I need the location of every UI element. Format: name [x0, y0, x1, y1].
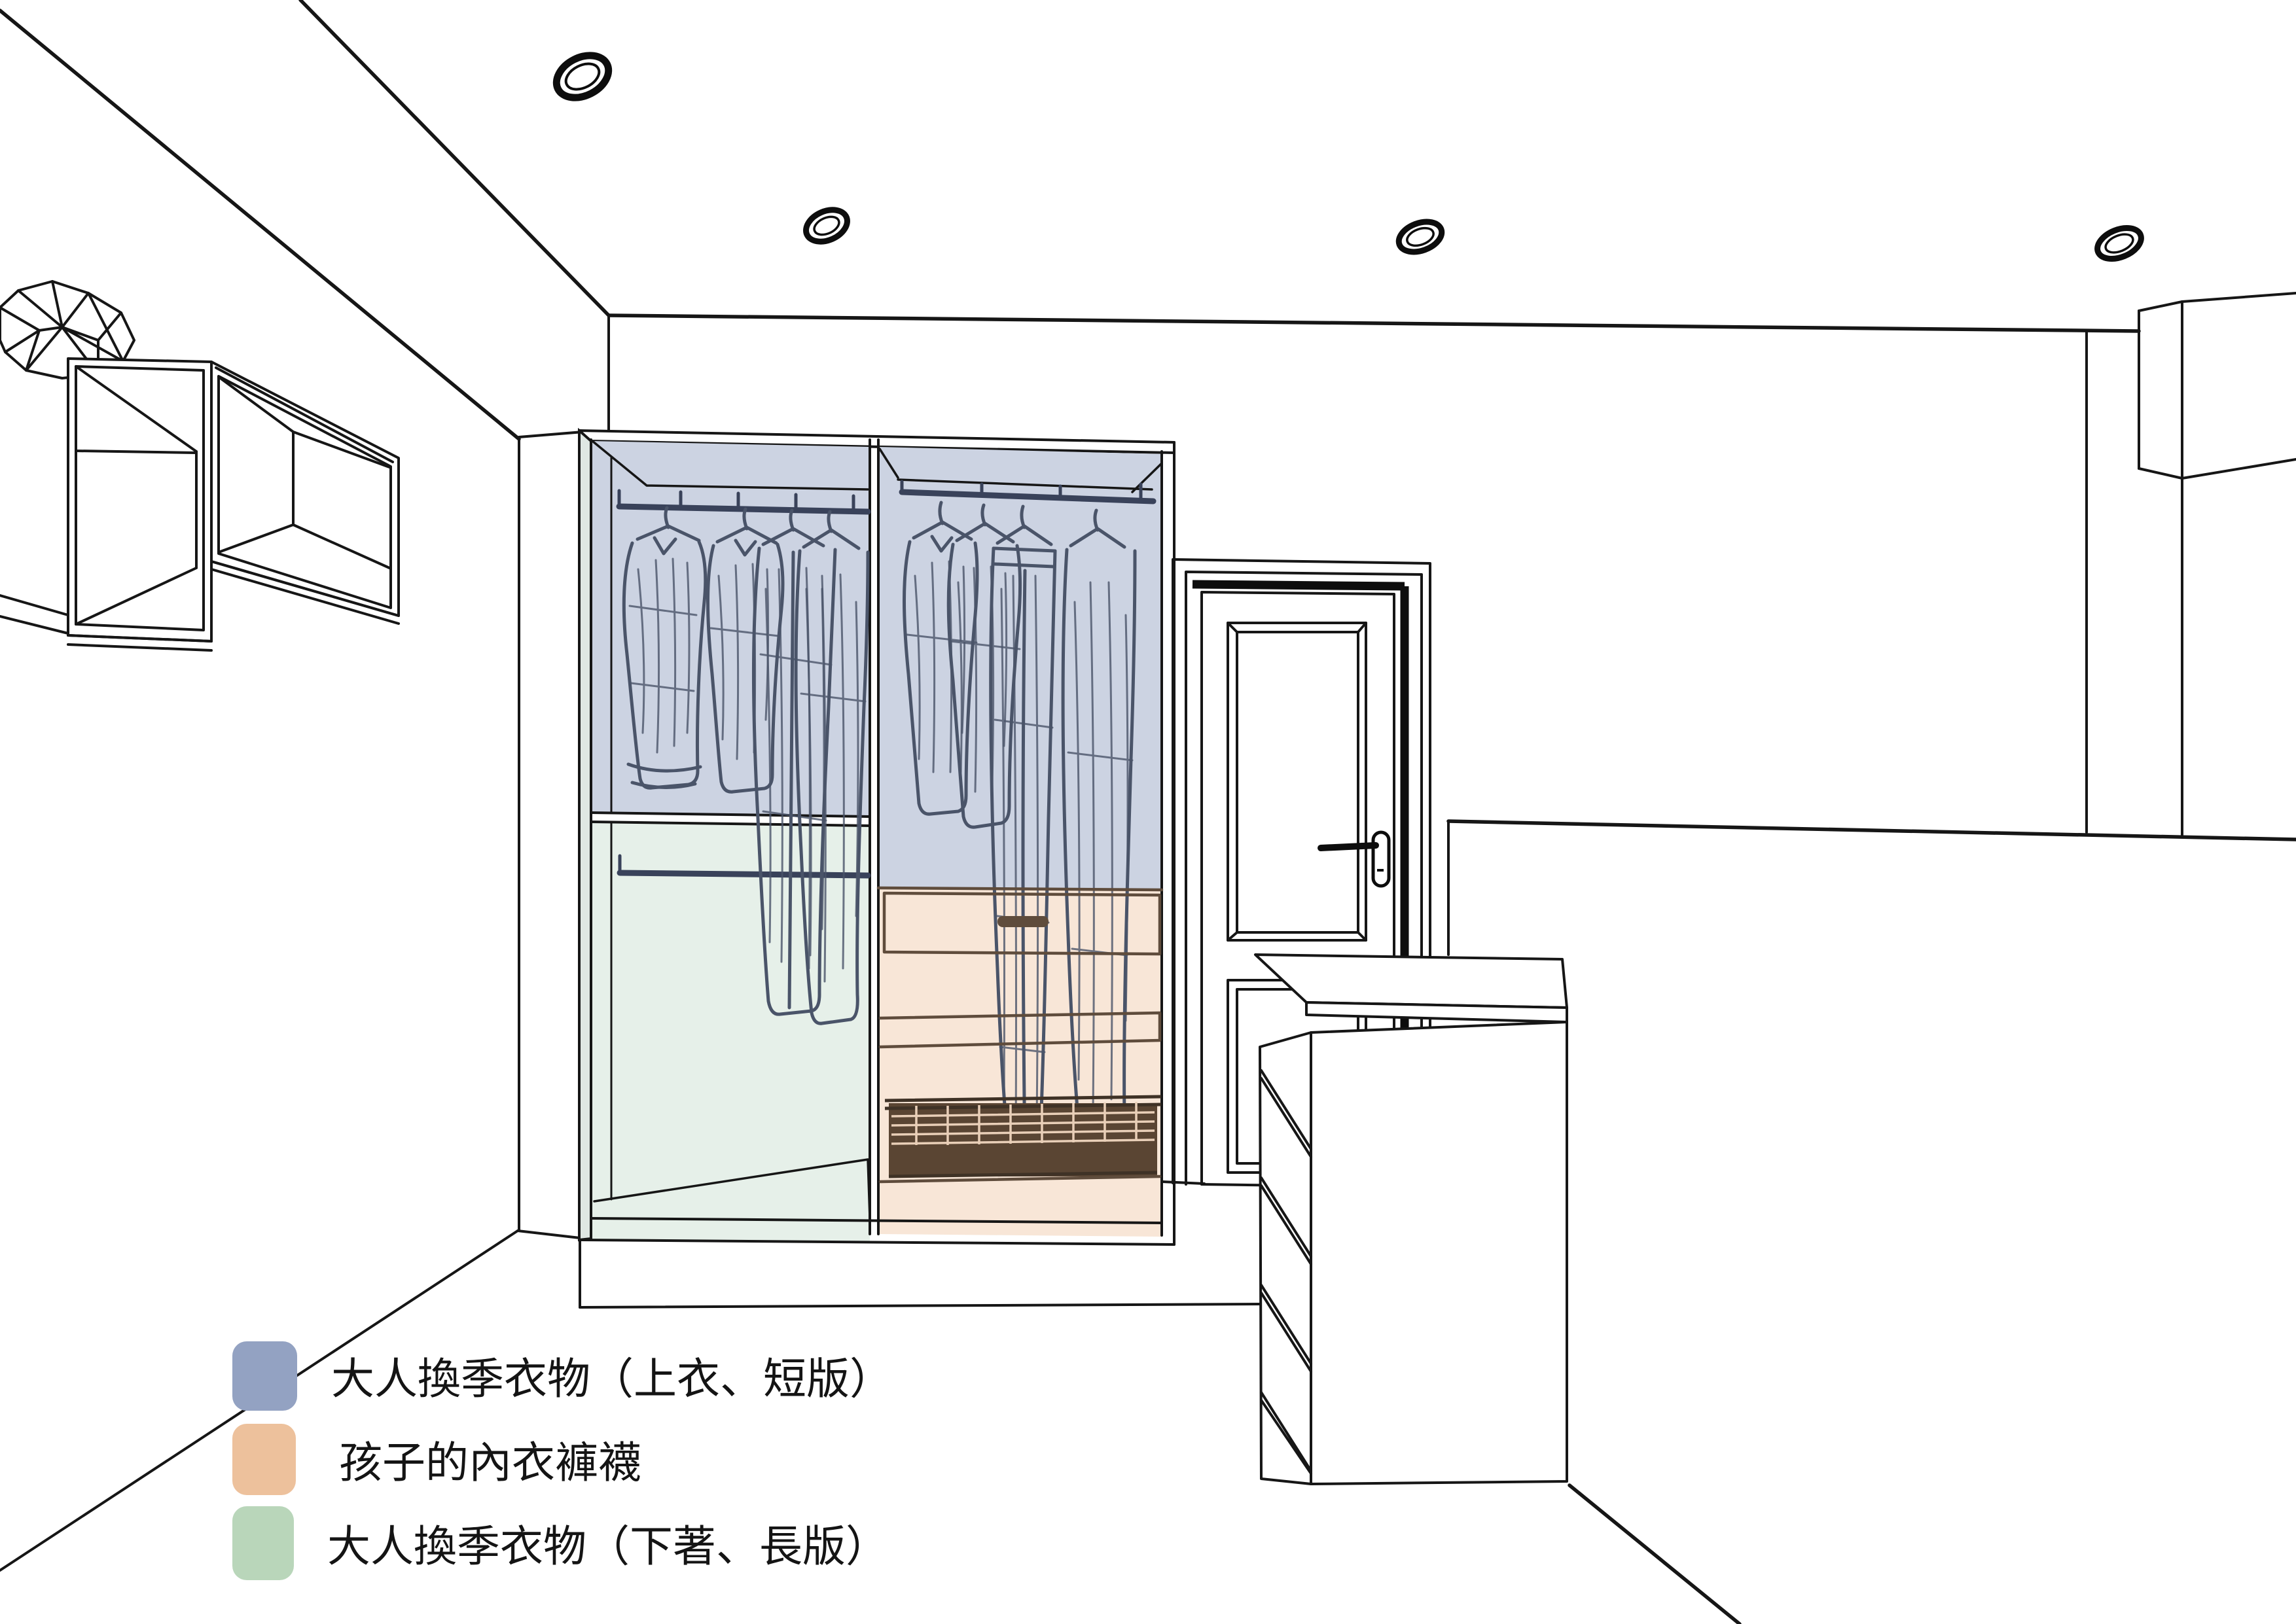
legend-swatch-blue — [232, 1341, 297, 1411]
right-ceiling-soffit — [2139, 293, 2296, 478]
legend-swatch-orange — [232, 1424, 296, 1495]
legend-label: 大人換季衣物（下著、長版） — [327, 1522, 889, 1570]
drawer-handle — [997, 916, 1049, 927]
closet-room-rendering: 大人換季衣物（上衣、短版） 孩子的內衣褲襪 大人換季衣物（下著、長版） — [0, 0, 2296, 1624]
door-handle — [1321, 832, 1389, 886]
soffit-bottom-edge — [2139, 459, 2296, 478]
dresser-countertop — [1255, 955, 1567, 1008]
door-lever — [1321, 845, 1376, 848]
zone-boundary-line — [878, 888, 1162, 890]
interior-rendering-page: 大人換季衣物（上衣、短版） 孩子的內衣褲襪 大人換季衣物（下著、長版） — [0, 0, 2296, 1624]
recessed-light — [2093, 222, 2146, 264]
legend-swatch-green — [232, 1506, 294, 1580]
wall-shelf-box-left — [0, 359, 211, 650]
zone-kids-underwear — [878, 888, 1162, 1237]
half-wall-top-edge — [1448, 821, 2296, 839]
green-zone-rod — [620, 873, 868, 875]
dresser-shelf-side — [1260, 1033, 1311, 1484]
recessed-light — [1395, 217, 1446, 258]
wire-basket — [885, 1097, 1161, 1176]
ceiling-left-upper-edge — [300, 0, 609, 315]
dresser-front-panel — [1311, 1022, 1567, 1484]
back-wall-ceiling-line — [609, 315, 2139, 331]
half-wall — [1448, 821, 2296, 955]
door-upper-panel — [1228, 623, 1366, 940]
door-reveal-shadow-top — [1193, 584, 1405, 586]
recessed-light — [549, 47, 615, 106]
wardrobe — [579, 431, 1174, 1244]
legend-label: 孩子的內衣褲襪 — [339, 1438, 641, 1487]
zone-adult-bottoms — [591, 822, 870, 1242]
wall-shelf-box-right — [211, 362, 399, 624]
floor-line-front — [580, 1304, 1263, 1307]
dresser-island — [1255, 955, 1567, 1484]
wardrobe-left-side-panel — [579, 431, 591, 1240]
floor-line-right — [1570, 1485, 1740, 1624]
legend-item: 大人換季衣物（下著、長版） — [232, 1506, 889, 1580]
soffit-top-edge — [2139, 293, 2296, 311]
ceiling-lights — [549, 47, 2145, 264]
zone-adult-tops-left — [591, 441, 870, 817]
legend-item: 孩子的內衣褲襪 — [232, 1424, 641, 1495]
wall-base-connector — [518, 1231, 580, 1238]
recessed-light — [801, 203, 852, 247]
legend-label: 大人換季衣物（上衣、短版） — [331, 1354, 893, 1403]
legend: 大人換季衣物（上衣、短版） 孩子的內衣褲襪 大人換季衣物（下著、長版） — [232, 1341, 893, 1580]
